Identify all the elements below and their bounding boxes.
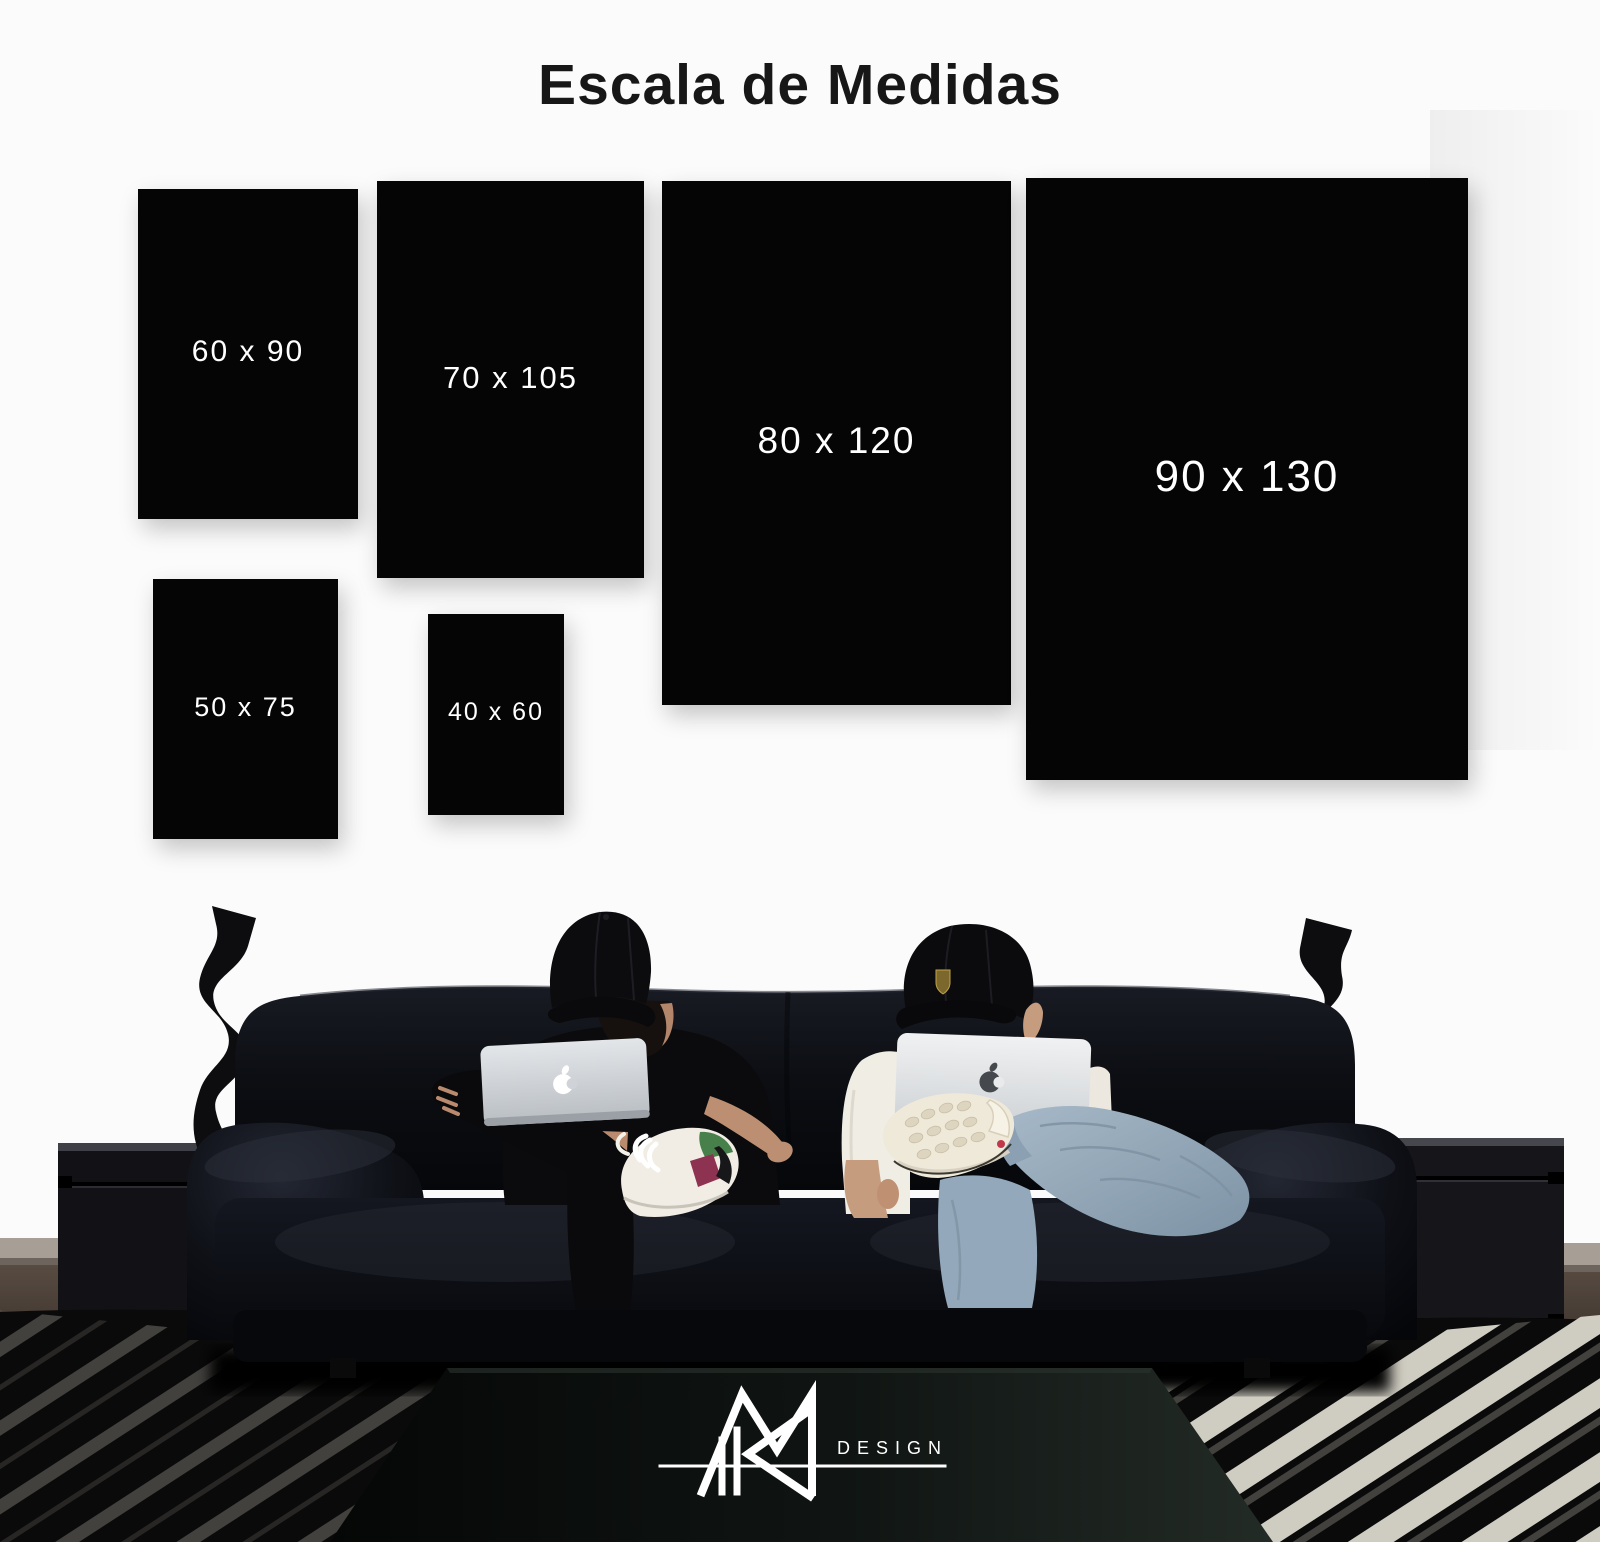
size-tile-70x105: 70 x 105 (377, 181, 644, 578)
left-person-cap (548, 912, 655, 1027)
size-label-60x90: 60 x 90 (192, 335, 304, 369)
size-tile-90x130: 90 x 130 (1026, 178, 1468, 780)
coffee-table: DESIGN (330, 1368, 1273, 1542)
page-title: Escala de Medidas (0, 52, 1600, 118)
right-person-hand (877, 1179, 899, 1209)
right-person-cap (896, 924, 1033, 1029)
left-laptop (480, 1038, 650, 1127)
size-label-40x60: 40 x 60 (448, 698, 544, 727)
living-room-photo: DESIGN (0, 860, 1600, 1542)
size-tile-50x75: 50 x 75 (153, 579, 338, 839)
right-person-vertical-leg (938, 1175, 1037, 1308)
size-tile-80x120: 80 x 120 (662, 181, 1011, 705)
size-label-90x130: 90 x 130 (1155, 452, 1340, 502)
size-label-70x105: 70 x 105 (443, 360, 578, 396)
size-label-80x120: 80 x 120 (758, 420, 916, 462)
size-label-50x75: 50 x 75 (194, 692, 297, 723)
couch-front-base (233, 1310, 1367, 1362)
size-tile-40x60: 40 x 60 (428, 614, 564, 815)
brand-wordmark: DESIGN (837, 1438, 948, 1458)
size-scale-infographic: { "title": "Escala de Medidas", "sizes":… (0, 0, 1600, 1542)
size-tile-60x90: 60 x 90 (138, 189, 358, 519)
